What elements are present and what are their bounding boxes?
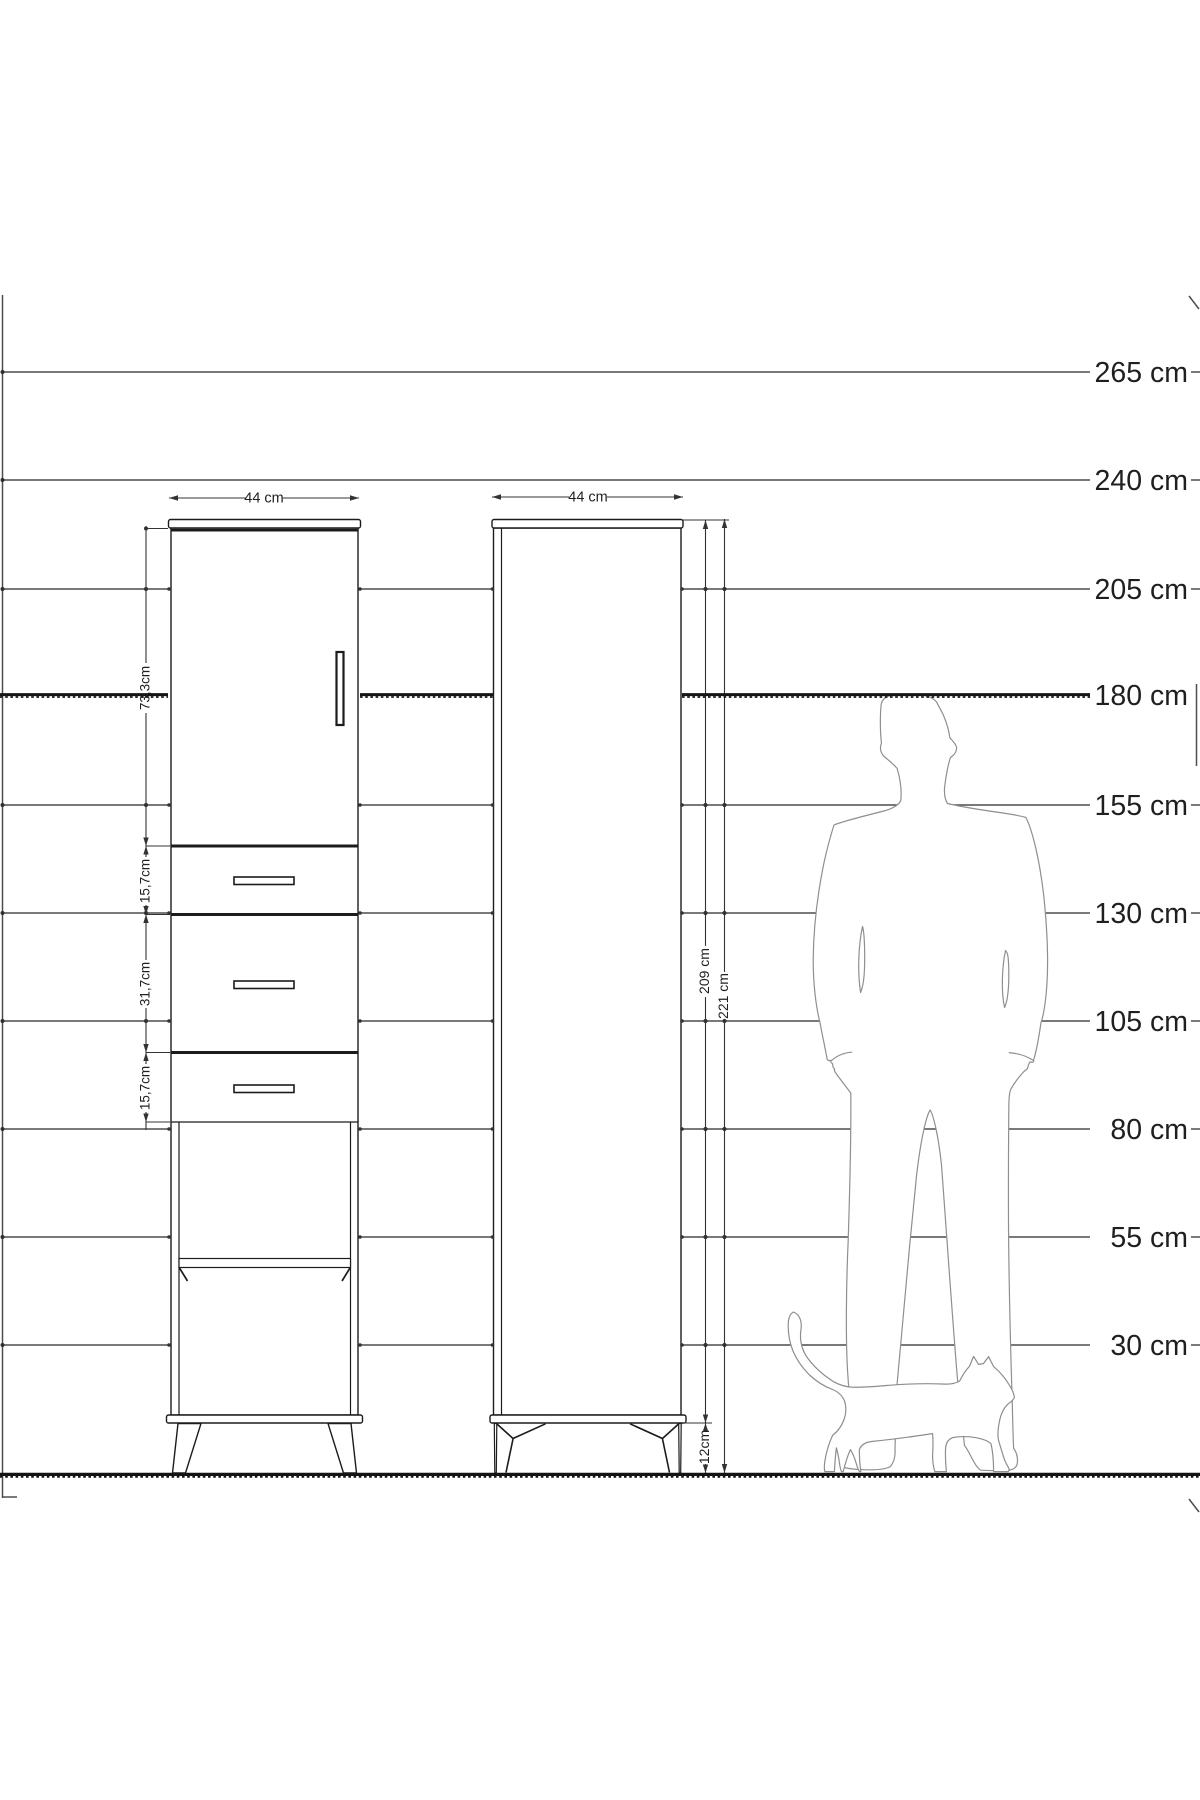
svg-text:205 cm: 205 cm — [1095, 574, 1188, 606]
svg-text:209 cm: 209 cm — [696, 948, 712, 994]
svg-text:31,7cm: 31,7cm — [138, 962, 153, 1006]
svg-text:265 cm: 265 cm — [1095, 357, 1188, 389]
svg-text:55 cm: 55 cm — [1110, 1222, 1188, 1254]
svg-text:15,7cm: 15,7cm — [138, 859, 153, 903]
svg-text:73,3cm: 73,3cm — [138, 666, 153, 710]
svg-text:180 cm: 180 cm — [1095, 680, 1188, 712]
svg-text:30 cm: 30 cm — [1110, 1330, 1188, 1362]
svg-text:12cm: 12cm — [696, 1430, 712, 1464]
svg-text:221 cm: 221 cm — [715, 973, 731, 1019]
svg-text:240 cm: 240 cm — [1095, 465, 1188, 497]
svg-text:130 cm: 130 cm — [1095, 898, 1188, 930]
svg-text:105 cm: 105 cm — [1095, 1006, 1188, 1038]
svg-text:44 cm: 44 cm — [244, 491, 284, 507]
svg-text:44 cm: 44 cm — [568, 490, 608, 506]
svg-text:155 cm: 155 cm — [1095, 790, 1188, 822]
svg-text:80 cm: 80 cm — [1110, 1114, 1188, 1146]
svg-text:15,7cm: 15,7cm — [138, 1066, 153, 1110]
